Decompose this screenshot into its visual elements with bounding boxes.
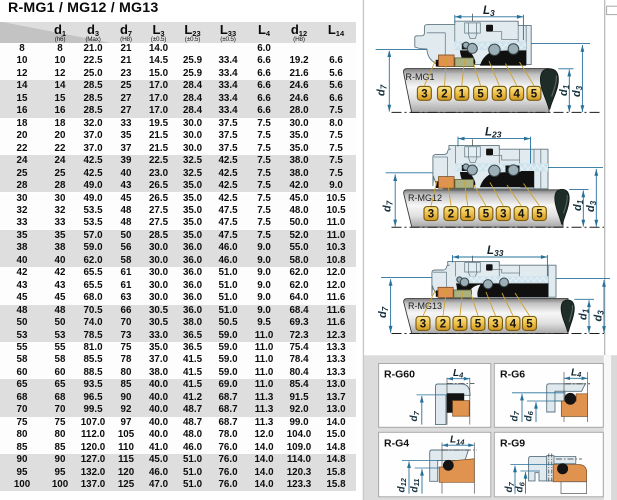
svg-text:5: 5	[526, 319, 533, 331]
svg-text:2: 2	[448, 209, 454, 221]
svg-text:R-MG12: R-MG12	[408, 193, 442, 203]
svg-text:1: 1	[459, 88, 466, 100]
svg-text:d3: d3	[593, 310, 606, 322]
svg-text:R-G4: R-G4	[384, 437, 409, 449]
svg-text:3: 3	[420, 319, 426, 331]
svg-text:d7: d7	[381, 200, 394, 212]
svg-text:2: 2	[441, 88, 447, 100]
svg-text:R-MG13: R-MG13	[408, 301, 442, 311]
svg-text:3: 3	[492, 319, 498, 331]
svg-text:d7: d7	[377, 306, 390, 318]
svg-text:d3: d3	[585, 200, 598, 212]
svg-text:5: 5	[483, 209, 490, 221]
svg-text:d1: d1	[572, 199, 585, 211]
svg-text:4: 4	[510, 319, 517, 331]
svg-text:d1: d1	[558, 84, 571, 96]
svg-text:R-G6: R-G6	[500, 369, 525, 381]
svg-text:d3: d3	[571, 85, 584, 97]
svg-text:2: 2	[440, 319, 446, 331]
svg-text:L23: L23	[485, 127, 502, 140]
svg-text:4: 4	[518, 209, 525, 221]
svg-text:3: 3	[496, 88, 502, 100]
svg-text:5: 5	[531, 88, 538, 100]
svg-text:3: 3	[421, 88, 427, 100]
svg-text:R-G60: R-G60	[384, 369, 415, 381]
svg-text:L3: L3	[483, 5, 495, 18]
svg-text:R-G9: R-G9	[500, 437, 525, 449]
svg-text:L33: L33	[487, 245, 504, 258]
svg-text:3: 3	[500, 209, 506, 221]
svg-text:4: 4	[513, 88, 520, 100]
svg-text:1: 1	[457, 319, 464, 331]
svg-text:3: 3	[428, 209, 434, 221]
svg-text:5: 5	[477, 88, 484, 100]
svg-text:5: 5	[536, 209, 543, 221]
svg-text:d7: d7	[376, 84, 389, 96]
svg-text:d1: d1	[578, 308, 591, 320]
svg-text:5: 5	[475, 319, 482, 331]
svg-text:1: 1	[464, 209, 471, 221]
